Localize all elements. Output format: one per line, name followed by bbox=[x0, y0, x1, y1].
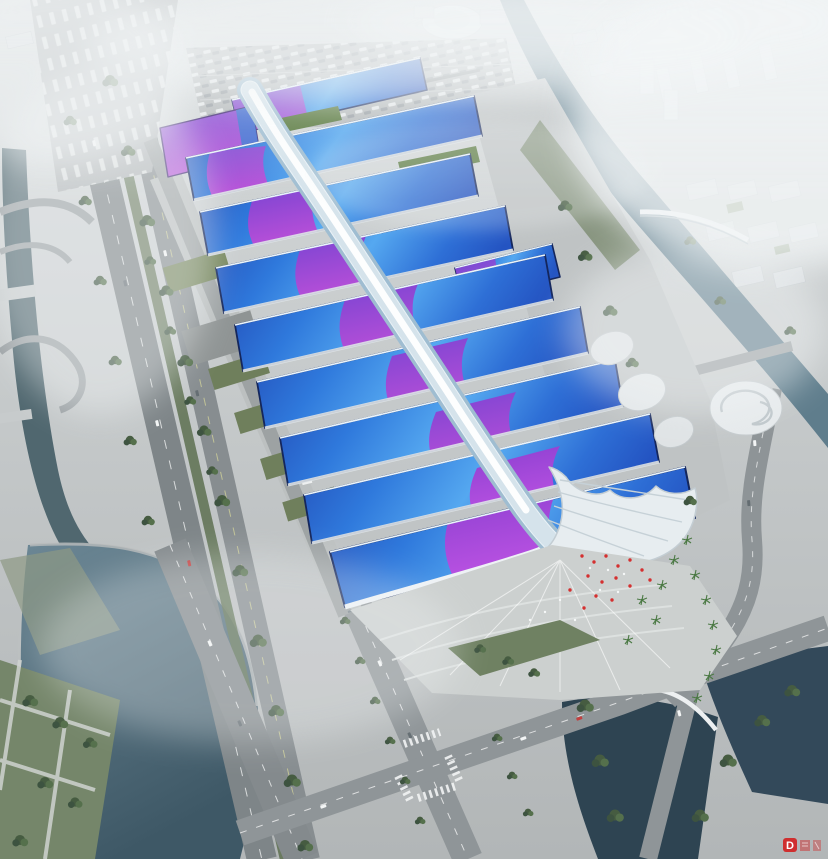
aerial-rendering: D bbox=[0, 0, 828, 859]
rendering-canvas: D bbox=[0, 0, 828, 859]
watermark-letter: D bbox=[786, 840, 794, 852]
watermark-logo: D bbox=[783, 838, 821, 852]
